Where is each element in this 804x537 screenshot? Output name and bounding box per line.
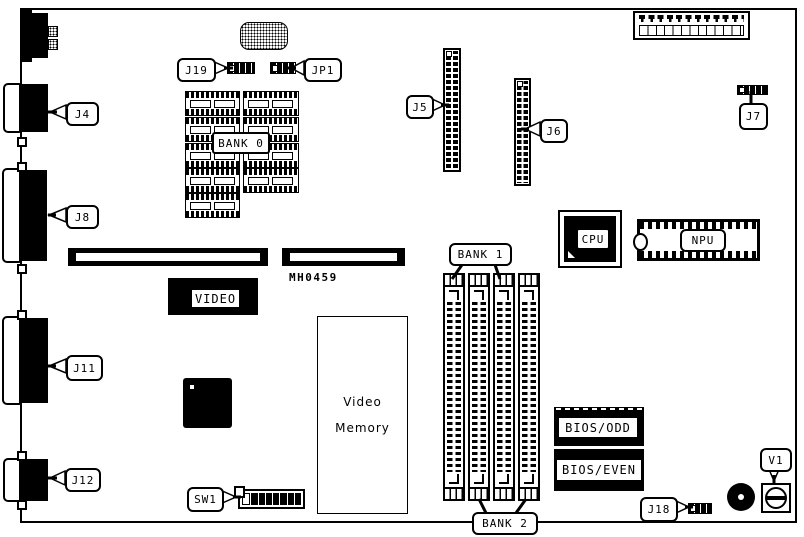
callout-bank0: BANK 0 <box>212 132 270 154</box>
callout-j8: J8 <box>66 205 99 229</box>
simm-socket-2 <box>468 273 490 501</box>
callout-bank1: BANK 1 <box>449 243 512 266</box>
plcc-chip <box>183 378 232 428</box>
keyboard-connector-pin-lower <box>48 39 58 50</box>
dip-switch-sw1-tab <box>234 486 245 498</box>
bank0-chip <box>185 91 240 116</box>
callout-j5: J5 <box>406 95 434 119</box>
edge-notch <box>17 451 27 461</box>
power-connector-pin-stems <box>639 19 744 22</box>
jumper-jp1 <box>270 62 296 74</box>
bios-odd-label: BIOS/ODD <box>558 417 638 438</box>
callout-j11: J11 <box>66 355 103 381</box>
bus-slot-right <box>282 248 405 266</box>
connector-j11 <box>20 318 48 403</box>
jumper-j7 <box>737 85 768 95</box>
simm-socket-4 <box>518 273 540 501</box>
npu-socket-notch <box>633 233 648 251</box>
bank0-chip <box>243 91 299 116</box>
keyboard-connector <box>20 8 32 62</box>
connector-j12-housing <box>3 458 21 502</box>
connector-j4 <box>20 84 48 132</box>
power-connector-cells <box>639 25 744 36</box>
bios-even-label: BIOS/EVEN <box>556 459 642 481</box>
edge-notch <box>17 137 27 147</box>
bios-odd-dashed-edge <box>556 408 642 410</box>
callout-bank2: BANK 2 <box>472 512 538 535</box>
callout-j7: J7 <box>739 103 768 130</box>
callout-j12: J12 <box>65 468 101 492</box>
callout-j18: J18 <box>640 497 678 522</box>
edge-notch <box>17 162 27 172</box>
connector-j8 <box>20 170 47 261</box>
trimmer-v1 <box>761 483 791 513</box>
keyboard-connector-pin-upper <box>48 26 58 37</box>
video-memory-text-line1: Video <box>318 395 407 409</box>
video-memory-region: Video Memory <box>317 316 408 514</box>
board-id-text: MH0459 <box>289 271 338 284</box>
callout-v1: V1 <box>760 448 792 472</box>
callout-j6: J6 <box>540 119 568 143</box>
callout-j4: J4 <box>66 102 99 126</box>
edge-notch <box>17 310 27 320</box>
simm-socket-3 <box>493 273 515 501</box>
connector-j11-housing <box>2 316 21 405</box>
video-chip-label: VIDEO <box>190 288 241 309</box>
dip-switch-sw1 <box>238 489 305 509</box>
npu-label: NPU <box>680 229 726 252</box>
connector-j8-housing <box>2 168 21 263</box>
connector-j4-housing <box>3 83 21 133</box>
bus-slot-left <box>68 248 268 266</box>
edge-notch <box>17 264 27 274</box>
edge-notch <box>17 500 27 510</box>
power-connector <box>633 11 750 40</box>
connector-j12 <box>20 459 48 501</box>
header-j6 <box>514 78 531 186</box>
bank0-chip <box>243 168 299 193</box>
callout-j19: J19 <box>177 58 216 82</box>
jumper-j19 <box>227 62 255 74</box>
keyboard-connector-body <box>32 13 48 58</box>
plcc-pin1-dot <box>190 385 194 389</box>
bank0-chip <box>185 193 240 218</box>
bank0-chip <box>185 168 240 193</box>
cpu-label: CPU <box>576 228 610 250</box>
thermal-pad <box>240 22 288 50</box>
simm-socket-1 <box>443 273 465 501</box>
callout-sw1: SW1 <box>187 487 224 512</box>
jumper-j18 <box>688 503 712 514</box>
motherboard-diagram: CPU NPU MH0459 VIDEO Video Memory BIOS/O… <box>0 0 804 537</box>
speaker <box>727 483 755 511</box>
header-j5 <box>443 48 461 172</box>
callout-jp1: JP1 <box>304 58 342 82</box>
video-memory-text-line2: Memory <box>318 421 407 435</box>
